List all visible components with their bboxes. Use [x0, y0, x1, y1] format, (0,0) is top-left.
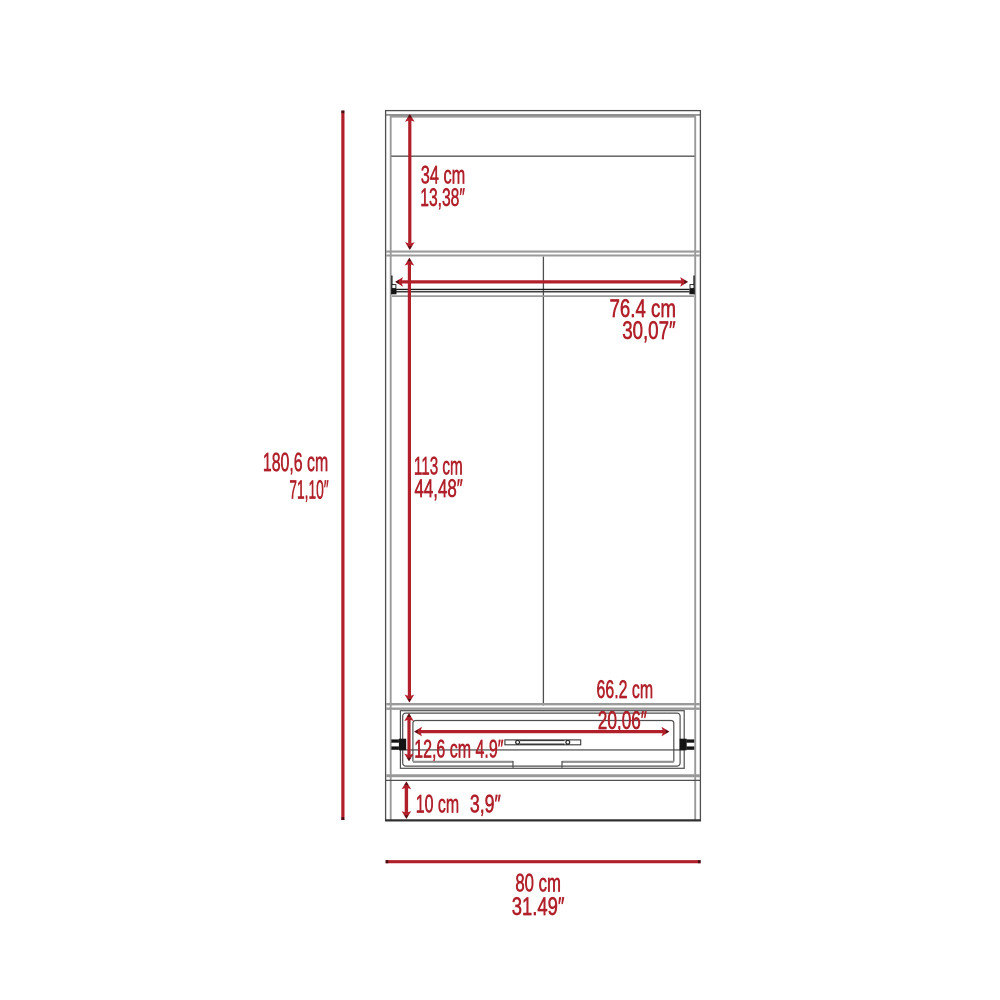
svg-text:3,9″: 3,9″	[470, 791, 501, 819]
svg-text:10 cm: 10 cm	[416, 791, 459, 819]
svg-text:71,10″: 71,10″	[289, 475, 328, 505]
svg-text:30,07″: 30,07″	[622, 317, 675, 345]
svg-text:20,06″: 20,06″	[598, 707, 647, 735]
svg-text:31.49″: 31.49″	[512, 893, 565, 921]
svg-text:12,6 cm 4.9″: 12,6 cm 4.9″	[414, 736, 503, 764]
svg-text:66.2 cm: 66.2 cm	[597, 676, 654, 704]
svg-text:13,38″: 13,38″	[420, 184, 465, 212]
svg-text:44,48″: 44,48″	[415, 475, 463, 503]
svg-text:180,6 cm: 180,6 cm	[263, 447, 328, 477]
